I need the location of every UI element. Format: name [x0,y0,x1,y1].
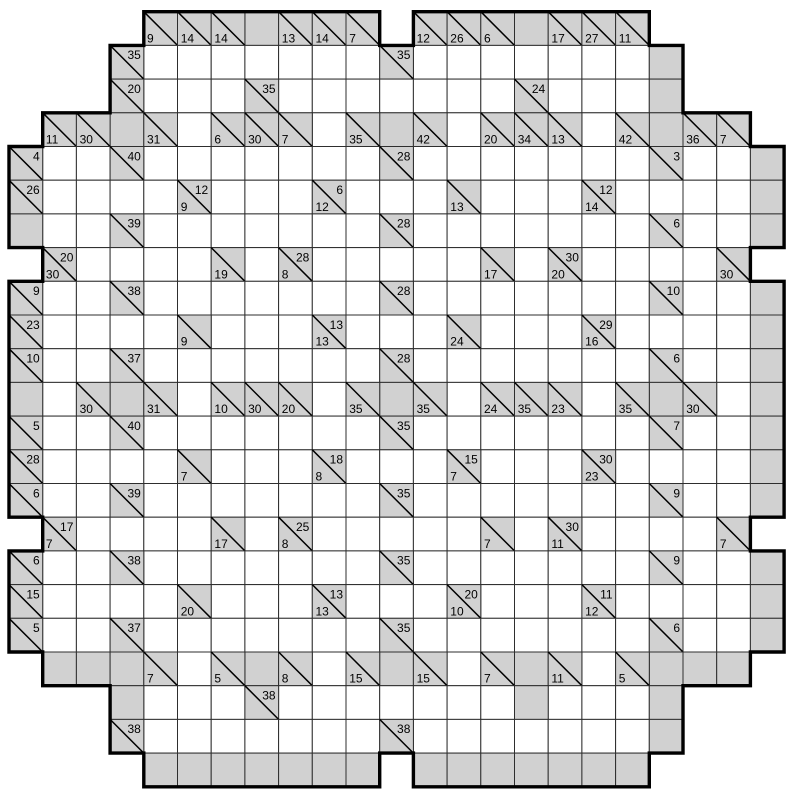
svg-text:12: 12 [417,31,431,45]
svg-text:38: 38 [127,722,141,736]
svg-text:27: 27 [585,31,599,45]
svg-text:29: 29 [599,318,613,332]
svg-text:13: 13 [330,587,344,601]
svg-text:35: 35 [127,48,141,62]
svg-text:28: 28 [296,250,310,264]
svg-text:16: 16 [585,335,599,349]
svg-text:30: 30 [686,402,700,416]
svg-text:38: 38 [127,554,141,568]
svg-text:35: 35 [397,486,411,500]
svg-text:30: 30 [80,402,94,416]
svg-text:38: 38 [397,722,411,736]
svg-text:28: 28 [397,352,411,366]
svg-text:5: 5 [619,672,626,686]
svg-text:20: 20 [181,604,195,618]
svg-text:30: 30 [566,520,580,534]
svg-text:35: 35 [349,402,363,416]
svg-text:7: 7 [720,133,727,147]
svg-text:10: 10 [26,352,40,366]
svg-text:13: 13 [450,200,464,214]
svg-text:11: 11 [46,133,59,147]
svg-text:9: 9 [147,31,154,45]
svg-text:7: 7 [181,470,188,484]
svg-text:30: 30 [248,133,262,147]
svg-text:35: 35 [349,133,363,147]
svg-text:38: 38 [262,689,276,703]
svg-text:24: 24 [450,335,464,349]
svg-text:31: 31 [147,402,161,416]
svg-text:15: 15 [464,453,478,467]
svg-text:35: 35 [397,621,411,635]
svg-text:23: 23 [585,470,599,484]
svg-text:36: 36 [686,133,700,147]
svg-text:4: 4 [33,149,40,163]
svg-text:35: 35 [417,402,431,416]
svg-text:26: 26 [26,183,40,197]
svg-text:14: 14 [585,200,599,214]
svg-text:28: 28 [26,453,40,467]
svg-text:20: 20 [551,267,565,281]
svg-text:23: 23 [551,402,565,416]
svg-text:7: 7 [673,419,680,433]
svg-text:3: 3 [673,149,680,163]
svg-text:20: 20 [484,133,498,147]
svg-text:35: 35 [262,82,276,96]
svg-text:28: 28 [397,284,411,298]
svg-text:6: 6 [673,621,680,635]
svg-text:34: 34 [518,133,532,147]
svg-text:30: 30 [248,402,262,416]
svg-text:35: 35 [397,554,411,568]
svg-text:5: 5 [33,621,40,635]
svg-text:13: 13 [316,604,330,618]
svg-text:37: 37 [127,621,141,635]
svg-text:7: 7 [282,133,289,147]
svg-text:12: 12 [316,200,330,214]
svg-text:35: 35 [397,419,411,433]
svg-text:8: 8 [282,267,289,281]
svg-text:14: 14 [181,31,195,45]
svg-text:8: 8 [282,537,289,551]
svg-text:28: 28 [397,149,411,163]
svg-text:12: 12 [585,604,599,618]
svg-text:20: 20 [60,250,74,264]
svg-text:24: 24 [532,82,546,96]
svg-text:26: 26 [450,31,464,45]
svg-text:28: 28 [397,217,411,231]
svg-text:11: 11 [600,587,613,601]
svg-text:5: 5 [214,672,221,686]
svg-text:6: 6 [673,217,680,231]
svg-text:37: 37 [127,352,141,366]
svg-text:10: 10 [450,604,464,618]
svg-text:30: 30 [720,267,734,281]
svg-text:30: 30 [80,133,94,147]
svg-text:40: 40 [127,419,141,433]
svg-text:20: 20 [464,587,478,601]
svg-text:12: 12 [599,183,613,197]
svg-text:15: 15 [417,672,431,686]
svg-text:20: 20 [127,82,141,96]
svg-text:5: 5 [33,419,40,433]
svg-text:17: 17 [484,267,498,281]
svg-text:18: 18 [330,453,344,467]
svg-text:6: 6 [214,133,221,147]
svg-text:42: 42 [619,133,633,147]
svg-text:40: 40 [127,149,141,163]
svg-text:35: 35 [518,402,532,416]
svg-text:35: 35 [397,48,411,62]
svg-text:7: 7 [147,672,154,686]
svg-text:24: 24 [484,402,498,416]
svg-text:7: 7 [46,537,53,551]
svg-text:13: 13 [551,133,565,147]
svg-text:39: 39 [127,486,141,500]
svg-text:6: 6 [484,31,491,45]
svg-text:14: 14 [316,31,330,45]
svg-text:12: 12 [195,183,209,197]
svg-text:25: 25 [296,520,310,534]
svg-text:6: 6 [673,352,680,366]
svg-text:35: 35 [619,402,633,416]
svg-text:42: 42 [417,133,431,147]
svg-text:6: 6 [33,486,40,500]
svg-text:9: 9 [673,486,680,500]
svg-text:8: 8 [282,672,289,686]
svg-text:10: 10 [214,402,228,416]
svg-text:9: 9 [33,284,40,298]
svg-text:6: 6 [336,183,343,197]
svg-text:14: 14 [214,31,228,45]
svg-text:9: 9 [181,335,188,349]
svg-text:39: 39 [127,217,141,231]
svg-text:7: 7 [484,537,491,551]
svg-text:17: 17 [60,520,74,534]
svg-text:7: 7 [484,672,491,686]
svg-text:30: 30 [46,267,60,281]
svg-text:17: 17 [551,31,565,45]
svg-text:13: 13 [316,335,330,349]
svg-text:13: 13 [282,31,296,45]
svg-text:30: 30 [599,453,613,467]
svg-text:30: 30 [566,250,580,264]
svg-text:23: 23 [26,318,40,332]
svg-text:7: 7 [720,537,727,551]
svg-text:31: 31 [147,133,161,147]
svg-text:11: 11 [551,537,564,551]
svg-text:11: 11 [619,31,632,45]
svg-text:9: 9 [673,554,680,568]
svg-text:13: 13 [330,318,344,332]
svg-text:20: 20 [282,402,296,416]
svg-text:6: 6 [33,554,40,568]
svg-text:7: 7 [349,31,356,45]
svg-text:11: 11 [551,672,564,686]
svg-text:19: 19 [214,267,228,281]
svg-text:9: 9 [181,200,188,214]
svg-text:8: 8 [316,470,323,484]
svg-text:7: 7 [450,470,457,484]
svg-text:17: 17 [214,537,228,551]
svg-text:10: 10 [667,284,681,298]
svg-text:15: 15 [26,587,40,601]
svg-text:15: 15 [349,672,363,686]
svg-text:38: 38 [127,284,141,298]
